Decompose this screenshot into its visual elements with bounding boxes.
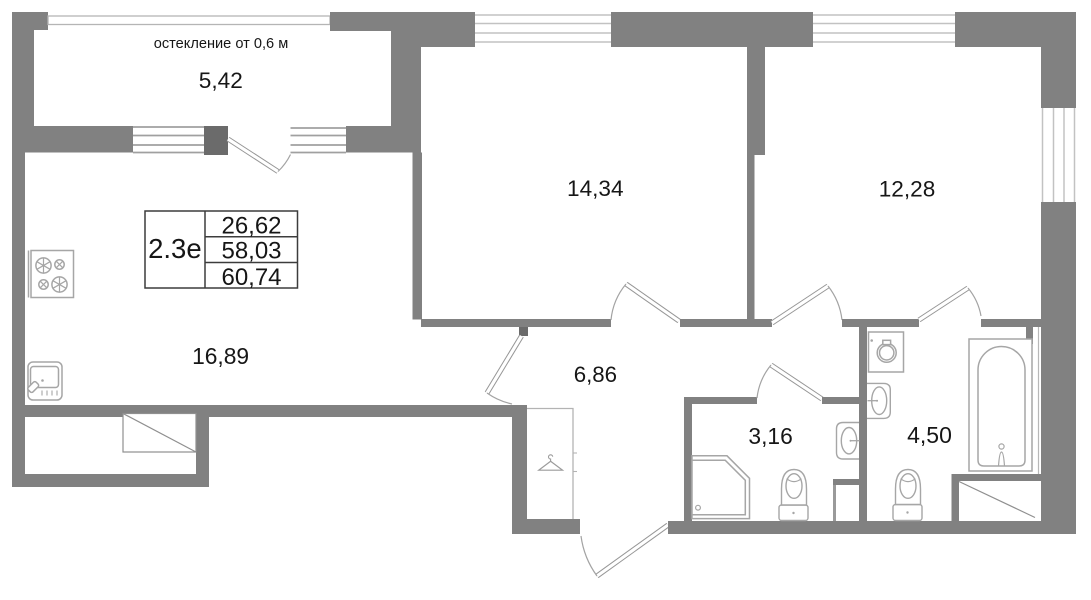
svg-text:26,62: 26,62 [221,212,281,239]
svg-text:4,50: 4,50 [907,422,952,448]
svg-text:12,28: 12,28 [879,177,936,202]
svg-text:16,89: 16,89 [192,343,249,369]
svg-text:14,34: 14,34 [567,176,624,201]
svg-text:5,42: 5,42 [199,68,243,93]
svg-text:6,86: 6,86 [574,362,617,387]
svg-text:2.3е: 2.3е [148,233,202,264]
svg-text:остекление от 0,6 м: остекление от 0,6 м [154,36,289,52]
svg-text:58,03: 58,03 [221,238,281,265]
svg-text:60,74: 60,74 [221,264,281,291]
svg-text:3,16: 3,16 [748,423,792,449]
